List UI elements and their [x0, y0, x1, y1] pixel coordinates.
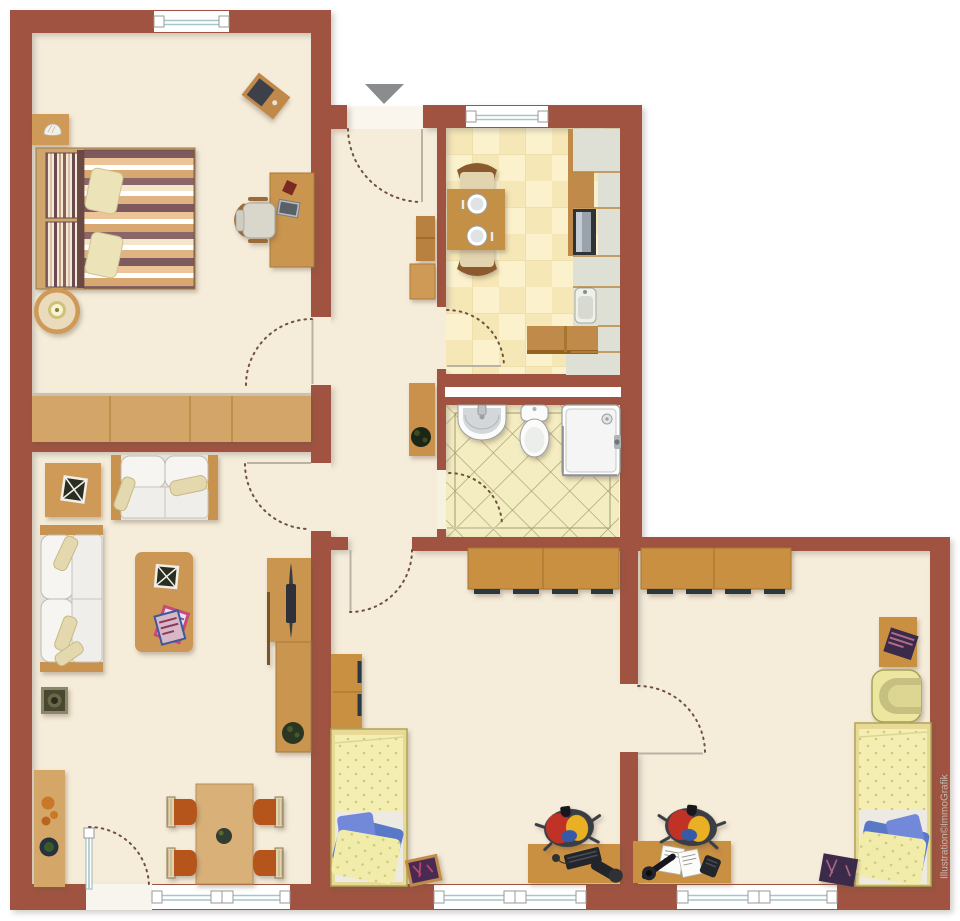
svg-text:Illustration©ImmoGrafik: Illustration©ImmoGrafik [940, 773, 951, 879]
